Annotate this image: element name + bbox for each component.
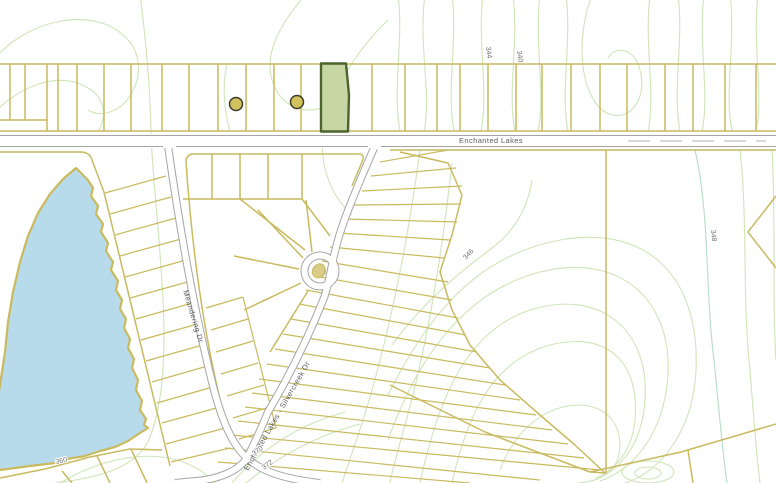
- marker-dot[interactable]: [291, 96, 304, 109]
- road-surface: [0, 134, 776, 148]
- road-enchanted-lakes: [0, 134, 776, 148]
- contour-label-348: 348: [709, 229, 717, 241]
- marker-dot[interactable]: [230, 98, 243, 111]
- selected-parcel[interactable]: [321, 64, 349, 132]
- road-label-enchanted-lakes: Enchanted Lakes: [459, 136, 523, 145]
- map-canvas[interactable]: Enchanted Lakes Meandering Dr Enchanted …: [0, 0, 776, 483]
- map-viewport[interactable]: Enchanted Lakes Meandering Dr Enchanted …: [0, 0, 776, 483]
